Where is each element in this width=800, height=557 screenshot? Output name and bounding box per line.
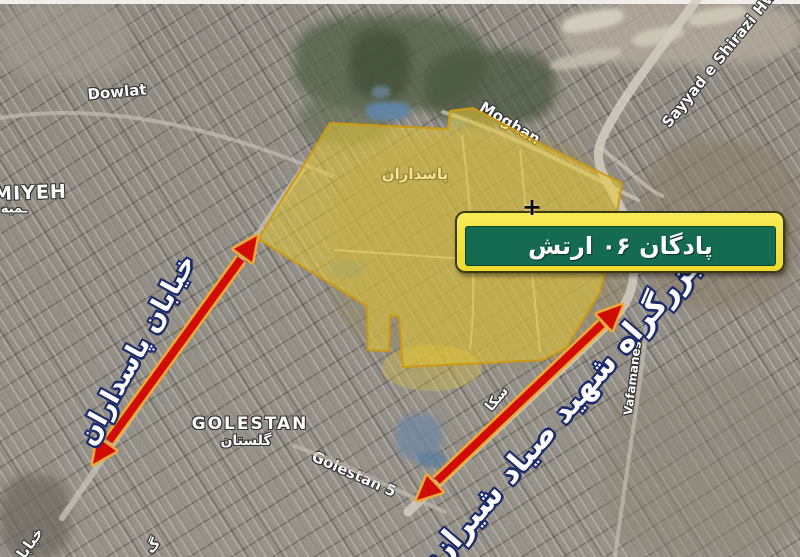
base-label-box: پادگان ۰۶ ارتش — [455, 211, 785, 273]
map-canvas[interactable]: Dowlat MIYEH ـمیه Moghan Sayyad e Shiraz… — [0, 0, 800, 557]
crosshair-cursor-icon: + — [522, 193, 542, 221]
base-label-text: پادگان ۰۶ ارتش — [528, 234, 713, 258]
base-label-panel: پادگان ۰۶ ارتش — [465, 226, 776, 266]
